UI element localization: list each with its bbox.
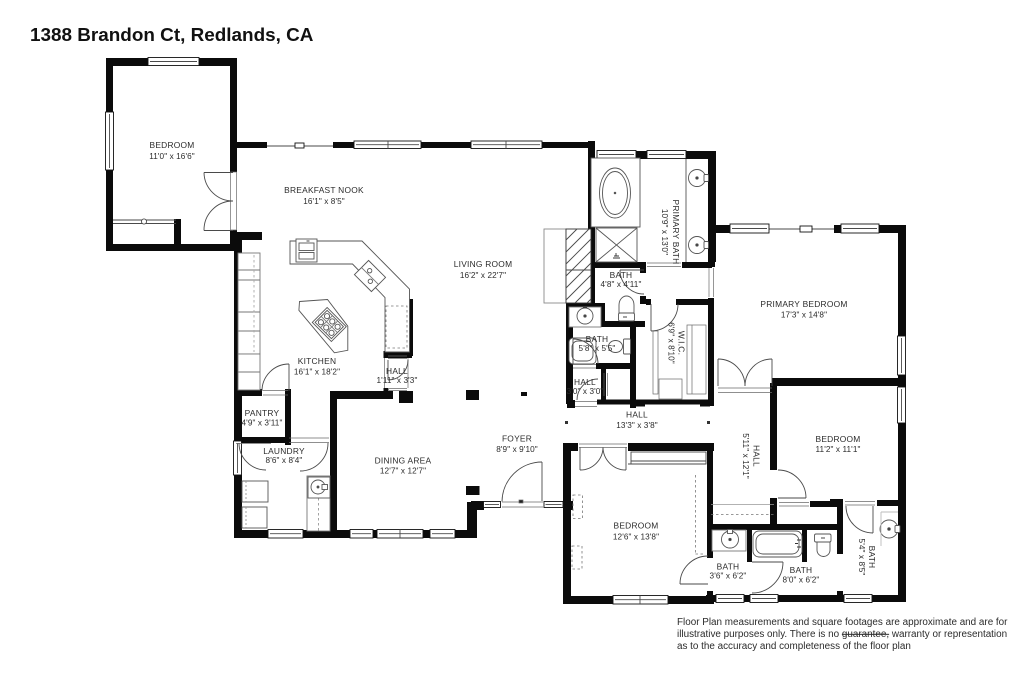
svg-text:5'4" x 8'5": 5'4" x 8'5" xyxy=(857,539,866,576)
svg-text:3'6" x 6'2": 3'6" x 6'2" xyxy=(710,572,747,581)
svg-text:16'2" x 22'7": 16'2" x 22'7" xyxy=(460,271,506,280)
svg-text:8'9" x 9'10": 8'9" x 9'10" xyxy=(496,445,538,454)
svg-text:3'0" x 3'0": 3'0" x 3'0" xyxy=(567,387,604,396)
svg-text:11'2" x 11'1": 11'2" x 11'1" xyxy=(816,445,861,454)
svg-text:10'9" x 13'0": 10'9" x 13'0" xyxy=(660,209,669,255)
svg-text:BEDROOM: BEDROOM xyxy=(613,521,658,531)
svg-text:12'7" x 12'7": 12'7" x 12'7" xyxy=(380,467,426,476)
svg-text:1388 Brandon Ct, Redlands, CA: 1388 Brandon Ct, Redlands, CA xyxy=(30,25,314,46)
svg-text:W.I.C.: W.I.C. xyxy=(677,331,687,355)
svg-text:12'6" x 13'8": 12'6" x 13'8" xyxy=(613,533,659,542)
svg-text:13'3" x 3'8": 13'3" x 3'8" xyxy=(616,421,658,430)
svg-text:5'8" x 5'5": 5'8" x 5'5" xyxy=(579,344,616,353)
svg-text:BATH: BATH xyxy=(717,562,740,572)
svg-text:KITCHEN: KITCHEN xyxy=(298,356,337,366)
svg-text:5'11" x 12'1": 5'11" x 12'1" xyxy=(741,433,750,479)
svg-text:LAUNDRY: LAUNDRY xyxy=(263,446,305,456)
svg-text:HALL: HALL xyxy=(626,410,648,420)
svg-text:4'8" x 4'11": 4'8" x 4'11" xyxy=(601,280,642,289)
svg-text:4'9" x 3'11": 4'9" x 3'11" xyxy=(242,419,283,428)
svg-text:Floor Plan measurements and sq: Floor Plan measurements and square foota… xyxy=(677,617,1008,628)
svg-text:FOYER: FOYER xyxy=(502,434,532,444)
svg-text:as to the accuracy and complet: as to the accuracy and completeness of t… xyxy=(677,641,911,652)
svg-text:PANTRY: PANTRY xyxy=(245,408,280,418)
svg-text:HALL: HALL xyxy=(752,445,762,467)
svg-text:PRIMARY BATH: PRIMARY BATH xyxy=(671,200,681,265)
svg-text:6'9" x 8'10": 6'9" x 8'10" xyxy=(667,322,676,364)
svg-text:16'1" x 18'2": 16'1" x 18'2" xyxy=(294,368,340,377)
svg-text:LIVING ROOM: LIVING ROOM xyxy=(454,259,513,269)
svg-text:BREAKFAST NOOK: BREAKFAST NOOK xyxy=(284,185,364,195)
svg-text:BEDROOM: BEDROOM xyxy=(149,140,194,150)
svg-text:BEDROOM: BEDROOM xyxy=(815,434,860,444)
svg-text:11'0" x 16'6": 11'0" x 16'6" xyxy=(149,152,195,161)
svg-text:HALL: HALL xyxy=(386,366,408,376)
svg-text:BATH: BATH xyxy=(586,334,609,344)
svg-text:8'0" x 6'2": 8'0" x 6'2" xyxy=(783,576,820,585)
svg-text:PRIMARY BEDROOM: PRIMARY BEDROOM xyxy=(760,299,847,309)
svg-text:16'1" x 8'5": 16'1" x 8'5" xyxy=(303,197,345,206)
svg-text:8'6" x 8'4": 8'6" x 8'4" xyxy=(266,456,303,465)
svg-text:BATH: BATH xyxy=(790,565,813,575)
svg-text:DINING AREA: DINING AREA xyxy=(375,456,432,466)
svg-text:1'11" x 3'3": 1'11" x 3'3" xyxy=(377,376,418,385)
svg-text:BATH: BATH xyxy=(610,270,633,280)
svg-text:BATH: BATH xyxy=(867,546,877,569)
svg-text:illustrative purposes only. Th: illustrative purposes only. There is no … xyxy=(677,629,1007,640)
svg-text:HALL: HALL xyxy=(574,377,596,387)
svg-text:17'3" x 14'8": 17'3" x 14'8" xyxy=(781,311,827,320)
